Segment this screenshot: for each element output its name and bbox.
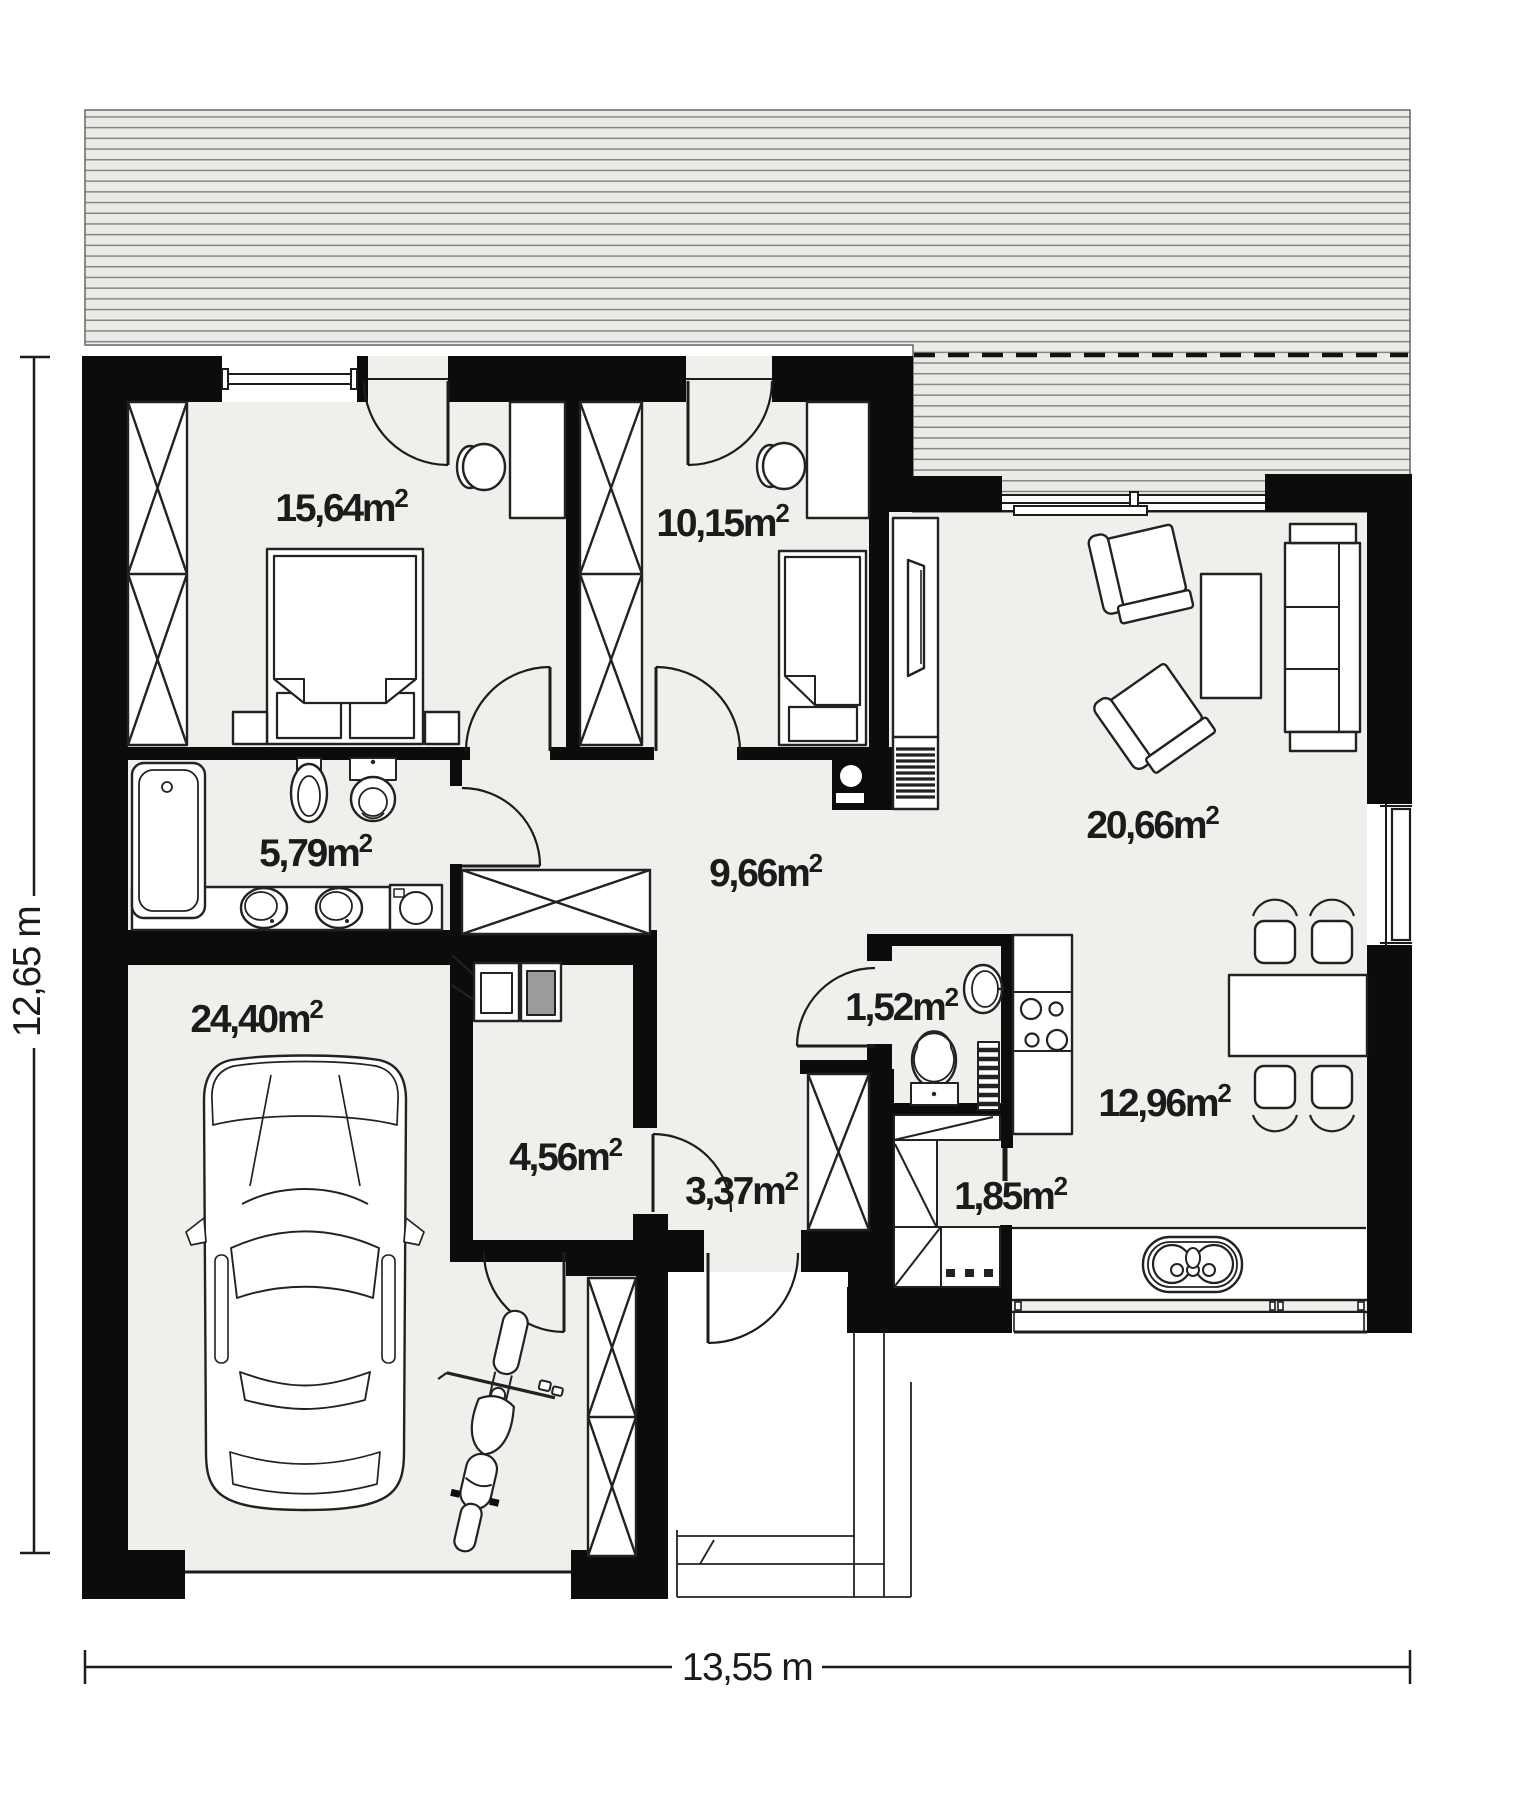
svg-text:10,15m2: 10,15m2	[656, 498, 789, 545]
svg-text:5,79m2: 5,79m2	[259, 828, 373, 875]
svg-text:1,52m2: 1,52m2	[845, 982, 959, 1029]
svg-text:15,64m2: 15,64m2	[275, 483, 408, 530]
svg-text:24,40m2: 24,40m2	[190, 994, 323, 1041]
svg-text:12,65 m: 12,65 m	[6, 907, 49, 1037]
svg-text:12,96m2: 12,96m2	[1098, 1078, 1231, 1125]
svg-text:3,37m2: 3,37m2	[685, 1166, 799, 1213]
svg-text:4,56m2: 4,56m2	[509, 1132, 623, 1179]
svg-text:20,66m2: 20,66m2	[1086, 800, 1219, 847]
svg-text:9,66m2: 9,66m2	[709, 848, 823, 895]
svg-text:13,55 m: 13,55 m	[682, 1646, 812, 1689]
svg-text:1,85m2: 1,85m2	[954, 1171, 1068, 1218]
